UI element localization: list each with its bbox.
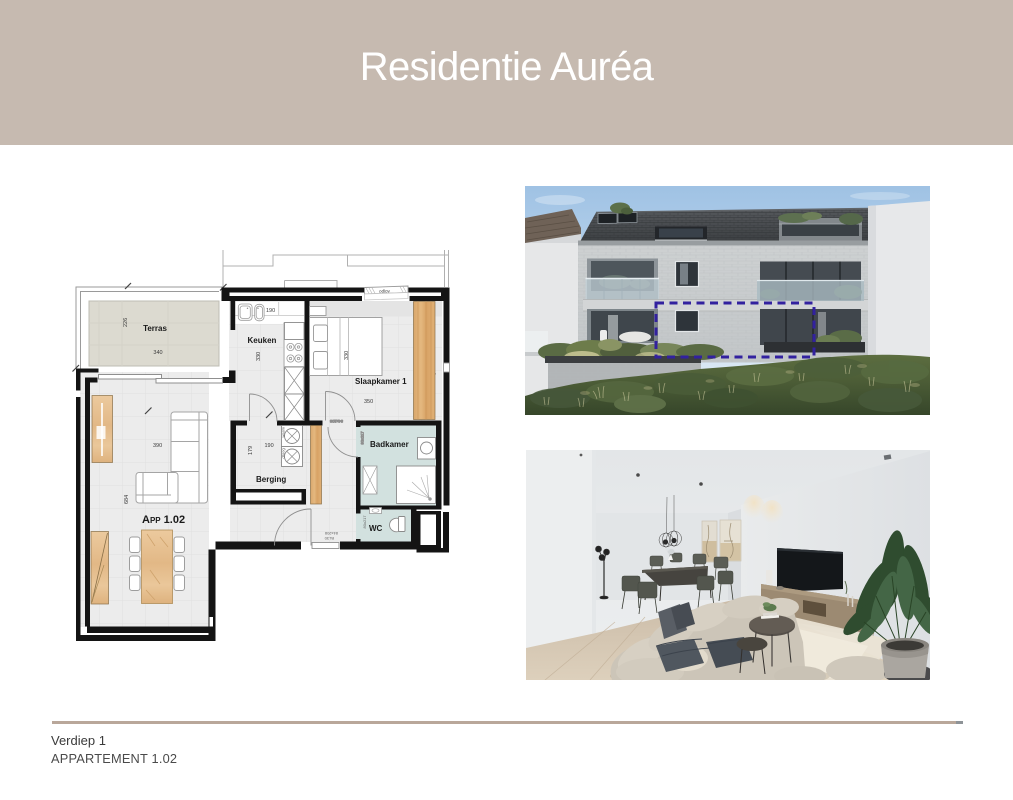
svg-text:Badkamer: Badkamer	[370, 440, 409, 449]
svg-text:84x208: 84x208	[329, 419, 343, 424]
svg-text:684: 684	[124, 495, 130, 504]
svg-text:80x217: 80x217	[362, 515, 367, 529]
svg-text:droog: droog	[281, 448, 286, 458]
svg-text:226: 226	[123, 318, 129, 327]
svg-text:330: 330	[344, 351, 350, 360]
svg-text:190: 190	[266, 308, 275, 314]
svg-text:Keuken: Keuken	[248, 336, 277, 345]
svg-text:340: 340	[153, 350, 162, 356]
svg-text:BL30: BL30	[324, 536, 334, 541]
svg-text:WC: WC	[369, 524, 383, 533]
svg-text:Terras: Terras	[143, 324, 167, 333]
svg-text:Berging: Berging	[256, 475, 286, 484]
svg-text:390: 390	[153, 443, 162, 449]
svg-text:App 1.02: App 1.02	[142, 514, 185, 526]
svg-text:80x217: 80x217	[360, 431, 365, 445]
svg-text:179: 179	[248, 446, 254, 455]
svg-text:190: 190	[265, 443, 274, 449]
svg-text:odlov: odlov	[379, 288, 391, 293]
svg-text:350: 350	[364, 399, 373, 405]
svg-text:Slaapkamer 1: Slaapkamer 1	[355, 377, 407, 386]
svg-text:wasm: wasm	[281, 426, 286, 437]
svg-text:330: 330	[256, 352, 262, 361]
svg-text:84x208: 84x208	[324, 531, 338, 536]
